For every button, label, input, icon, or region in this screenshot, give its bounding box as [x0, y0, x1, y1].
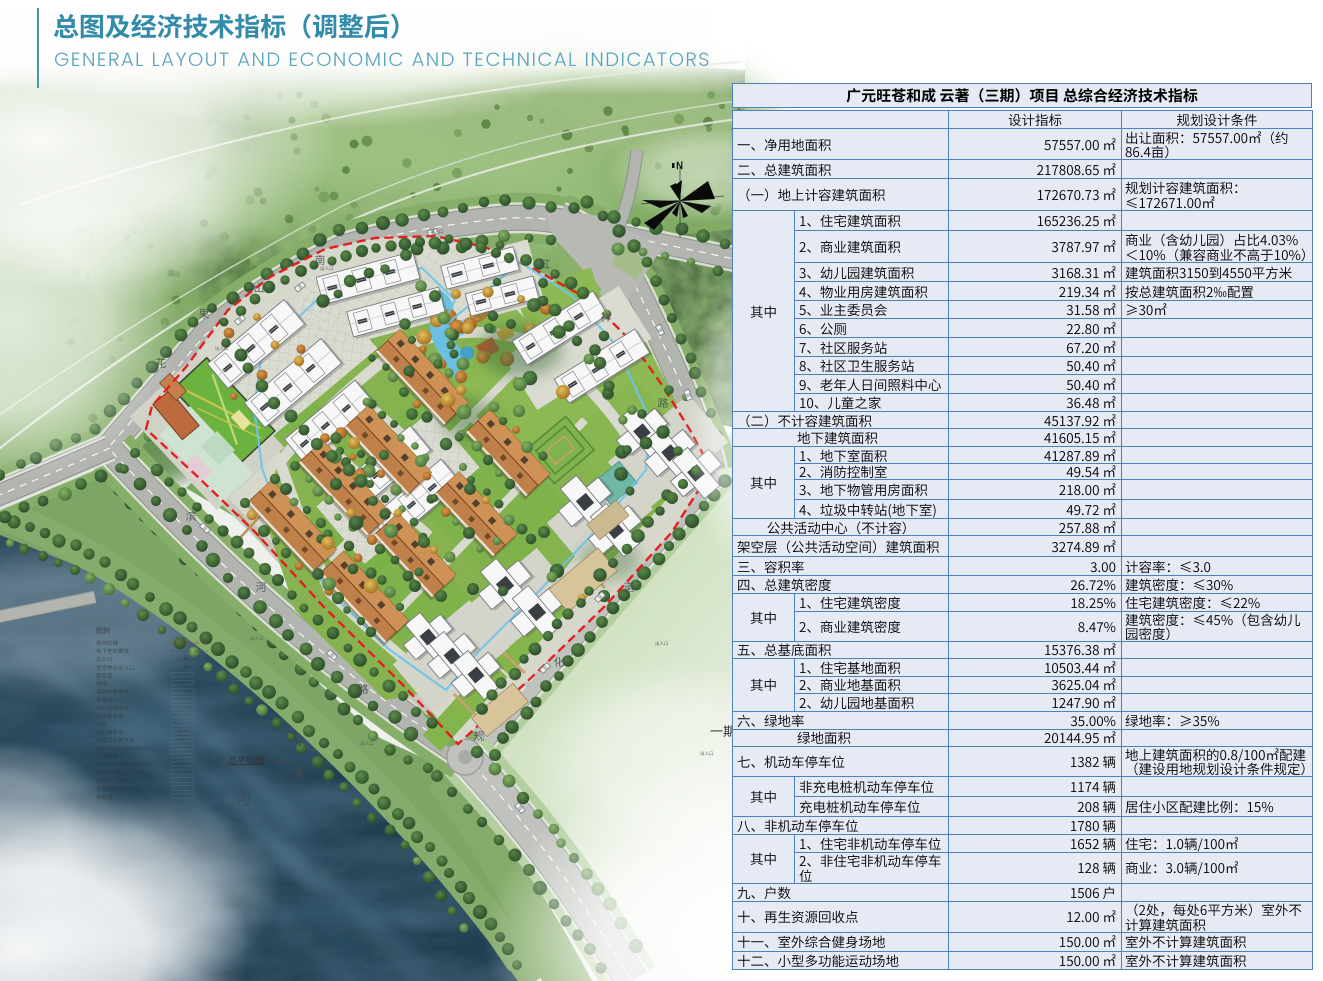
svg-text:儿童之家: 儿童之家: [96, 752, 119, 760]
svg-text:祥: 祥: [601, 309, 612, 325]
svg-text:出入口: 出入口: [360, 741, 374, 747]
svg-text:老年人日间照料中心: 老年人日间照料中心: [96, 744, 146, 752]
svg-text:出入口: 出入口: [655, 641, 669, 647]
svg-text:消防登高场地: 消防登高场地: [96, 785, 130, 793]
svg-text:河: 河: [256, 579, 267, 595]
svg-text:住宅单元出入口: 住宅单元出入口: [96, 663, 135, 671]
svg-text:山: 山: [254, 280, 265, 296]
svg-text:图例: 图例: [96, 626, 110, 636]
svg-text:室外综合健身场地: 室外综合健身场地: [96, 761, 141, 769]
svg-text:河: 河: [236, 788, 251, 809]
svg-text:公厕: 公厕: [96, 720, 108, 728]
svg-text:消防扑救场地: 消防扑救场地: [96, 688, 130, 696]
svg-text:N: N: [676, 157, 683, 172]
svg-text:再生资源回收点: 再生资源回收点: [96, 777, 135, 785]
svg-text:滨: 滨: [186, 508, 197, 524]
svg-text:社区服务站: 社区服务站: [96, 728, 124, 736]
svg-text:出入口: 出入口: [215, 346, 229, 352]
svg-text:业主委员会: 业主委员会: [96, 712, 124, 720]
svg-text:坡屋顶: 坡屋顶: [96, 793, 113, 801]
svg-text:出入口: 出入口: [250, 636, 264, 642]
svg-text:小型多功能运动场地: 小型多功能运动场地: [96, 769, 146, 777]
svg-text:总平面图: 总平面图: [228, 753, 264, 766]
svg-text:路: 路: [658, 395, 669, 411]
svg-text:出入口: 出入口: [96, 655, 113, 663]
svg-text:道: 道: [624, 579, 635, 595]
svg-text:车库出入口: 车库出入口: [96, 696, 124, 704]
svg-text:出入口: 出入口: [430, 229, 444, 235]
svg-text:用地红线: 用地红线: [96, 639, 119, 647]
svg-text:红: 红: [540, 256, 551, 272]
svg-text:绿地: 绿地: [96, 680, 108, 688]
svg-text:化: 化: [554, 654, 565, 670]
svg-text:东: 东: [174, 725, 189, 746]
svg-text:1:500: 1:500: [268, 756, 283, 765]
svg-text:规: 规: [474, 728, 485, 744]
svg-text:出入口: 出入口: [320, 266, 334, 272]
svg-text:N: N: [295, 737, 301, 750]
svg-text:路: 路: [358, 681, 369, 697]
svg-text:架空层: 架空层: [96, 671, 113, 679]
svg-text:果: 果: [199, 306, 210, 322]
svg-text:出入口: 出入口: [700, 751, 714, 757]
svg-text:物业管理用房: 物业管理用房: [96, 704, 130, 712]
svg-text:花: 花: [156, 355, 167, 371]
svg-text:地下室轮廓线: 地下室轮廓线: [96, 647, 130, 655]
svg-text:社区卫生服务站: 社区卫生服务站: [96, 736, 135, 744]
